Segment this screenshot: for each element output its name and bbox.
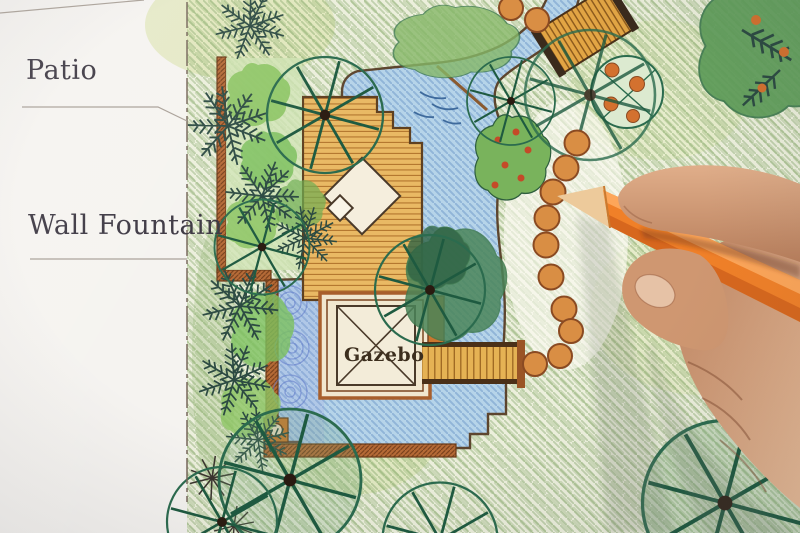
berry-shrub bbox=[475, 115, 551, 200]
boardwalk bbox=[422, 340, 525, 388]
plan-drawing bbox=[0, 0, 800, 533]
label-wall-fountain: Wall Fountain bbox=[28, 210, 223, 241]
photo-of-landscape-plan: Patio Wall Fountain Gazebo bbox=[0, 0, 800, 533]
label-patio: Patio bbox=[26, 55, 97, 86]
label-gazebo: Gazebo bbox=[344, 344, 424, 366]
